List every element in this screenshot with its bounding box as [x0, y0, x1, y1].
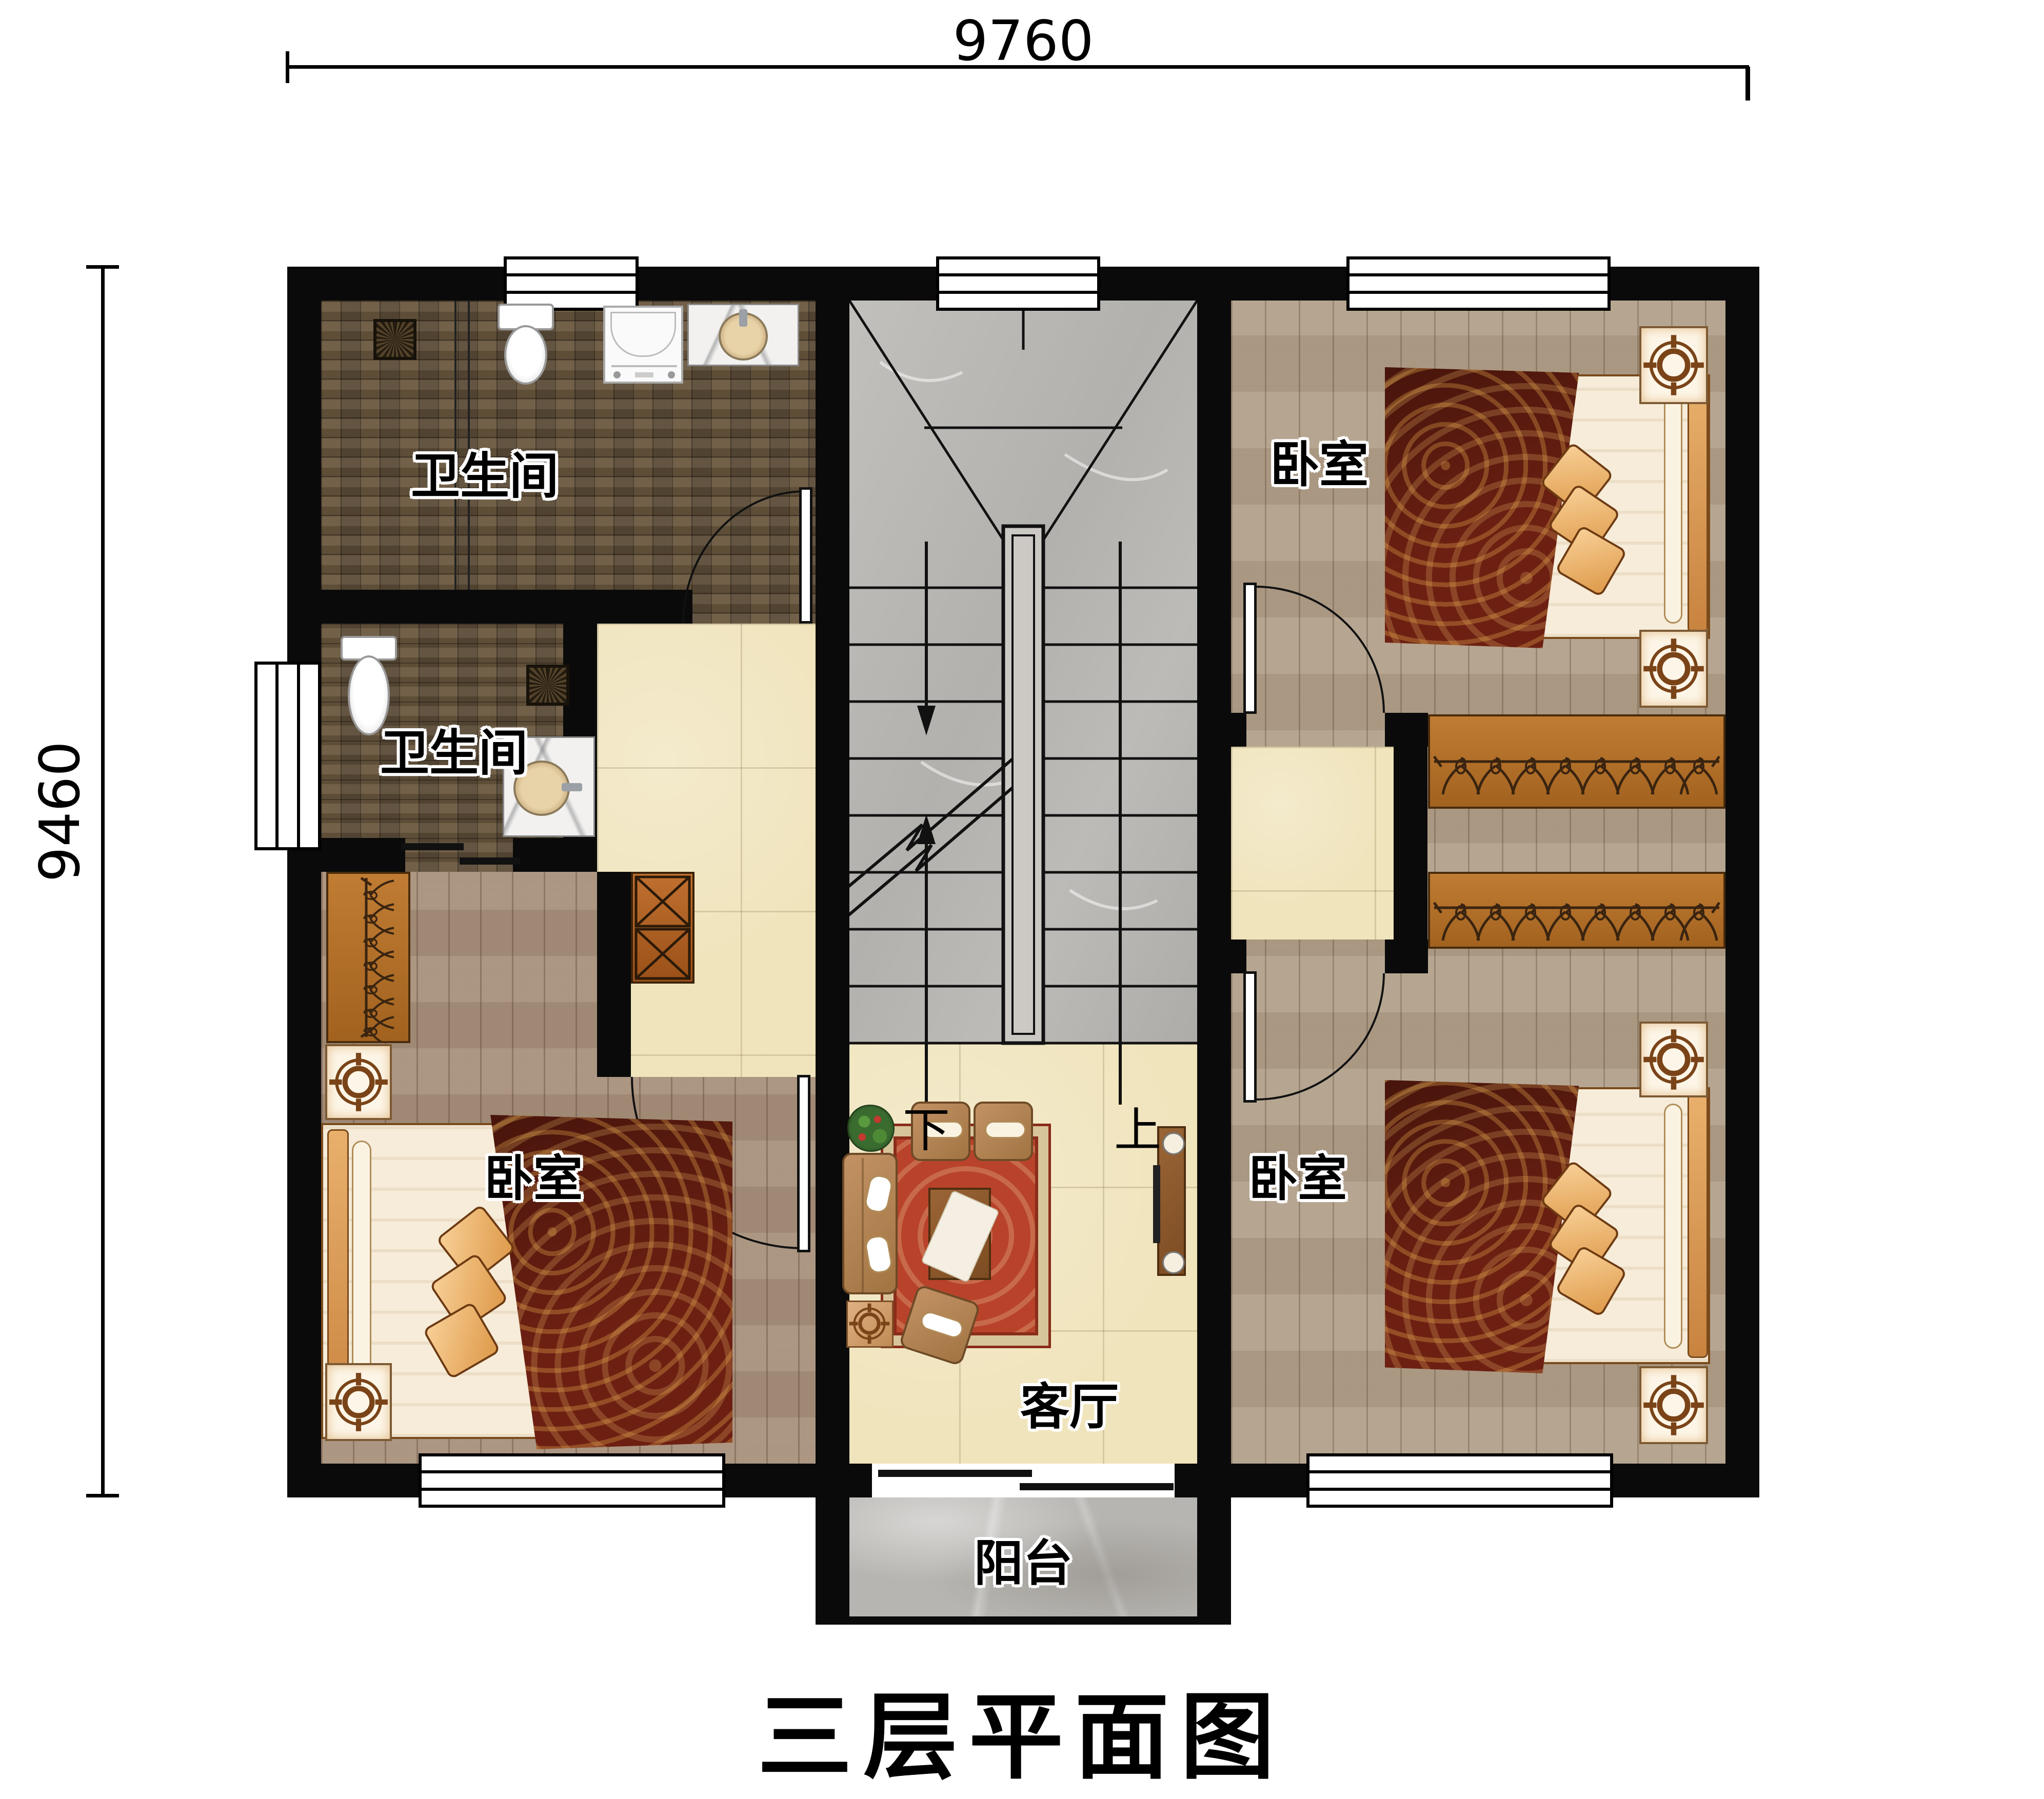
room-label-bedroom-bottom-left: 卧室 [484, 1139, 583, 1210]
balcony-rail [816, 1616, 1231, 1625]
dim-tick-left-top [86, 265, 119, 269]
wall-bedroom-br-top-b [1385, 940, 1428, 973]
nightstand-lamp-icon [1641, 333, 1706, 397]
door-leaf-bathroom-mid-a [401, 843, 464, 850]
wardrobe-icon-top-right [1428, 714, 1725, 809]
nightstand-bottom-right-b [1639, 1366, 1708, 1444]
dim-tick-left-bottom [86, 1494, 119, 1497]
window-icon-top-bathroom [504, 256, 639, 311]
room-label-bathroom-mid: 卫生间 [380, 713, 528, 785]
shoe-cabinet-icon [631, 872, 694, 984]
dim-tick-top-right [1745, 67, 1750, 101]
nightstand-bottom-left-a [325, 1044, 392, 1120]
floor-drain-icon-mid [526, 665, 569, 706]
wall-bedroom-br-top-a [1197, 940, 1246, 973]
sink-icon-top [687, 304, 799, 366]
room-label-bathroom-top: 卫生间 [411, 436, 559, 508]
door-leaf-bedroom-bl [797, 1075, 810, 1252]
side-table-icon [846, 1301, 894, 1348]
sofa-icon [842, 1153, 898, 1294]
wall-bathroom-top-bottom [287, 590, 692, 624]
window-icon-bottom-left-bedroom [419, 1453, 725, 1508]
toilet-icon-top [498, 304, 554, 386]
room-label-bedroom-bottom-right: 卧室 [1248, 1139, 1347, 1210]
balcony-door-opening [872, 1464, 1175, 1497]
armchair-icon-b [974, 1102, 1033, 1161]
tv-console-icon [1157, 1126, 1186, 1276]
coffee-table-icon [928, 1188, 991, 1280]
window-icon-left-bathroom [254, 662, 321, 850]
wardrobe-icon-left [326, 872, 410, 1043]
hall-floor-right-arm [1231, 747, 1394, 940]
page-title: 三层平面图 [758, 1661, 1286, 1797]
dim-text-left: 9460 [28, 741, 92, 882]
floor-drain-icon-top [373, 319, 416, 360]
window-icon-top-stairs [936, 256, 1100, 311]
bed-icon-top-right [1385, 374, 1710, 639]
stair-label-up: 上 [1114, 1092, 1161, 1161]
nightstand-bottom-right-a [1639, 1022, 1708, 1097]
wall-balcony-right [1197, 1497, 1231, 1624]
plant-icon [847, 1105, 895, 1152]
nightstand-bottom-left-b [325, 1363, 392, 1441]
dim-line-left [101, 267, 105, 1497]
wall-stair-left [816, 267, 849, 1077]
staircase [849, 301, 1197, 1138]
door-leaf-bedroom-br [1243, 971, 1257, 1103]
sliding-door-icon-a [878, 1470, 1032, 1477]
door-leaf-bathroom-top [799, 487, 812, 624]
nightstand-top-right-b [1639, 630, 1708, 708]
door-leaf-bedroom-tr [1243, 583, 1257, 714]
bed-icon-bottom-right [1385, 1087, 1710, 1364]
wall-dressing-divider [1394, 713, 1427, 973]
wall-balcony-left [816, 1497, 849, 1624]
floor-plan: 卫生间 卫生间 卧室 卧室 卧室 客厅 阳台 下 上 9760 9460 三层平… [0, 0, 2044, 1799]
room-label-living: 客厅 [1020, 1367, 1119, 1438]
dim-tick-top-left [286, 51, 289, 83]
wall-left [287, 267, 321, 1497]
wall-cabinet-back [597, 872, 631, 1077]
stair-label-down: 下 [903, 1092, 950, 1161]
sliding-door-icon-b [1020, 1483, 1174, 1490]
window-icon-bottom-right-bedroom [1306, 1453, 1613, 1508]
washing-machine-icon [603, 306, 683, 384]
window-icon-top-bedroom [1346, 256, 1611, 311]
room-label-balcony: 阳台 [974, 1524, 1073, 1595]
room-label-bedroom-top-right: 卧室 [1270, 425, 1368, 496]
dim-text-top: 9760 [953, 9, 1094, 73]
wall-bedroom-tr-bottom-a [1197, 713, 1246, 747]
wall-bathroom-mid-bottom-b [513, 838, 597, 872]
nightstand-top-right-a [1639, 326, 1708, 404]
wall-right [1725, 267, 1759, 1497]
wardrobe-icon-bottom-right [1428, 872, 1725, 949]
door-leaf-bathroom-mid-b [460, 857, 520, 865]
wall-bedroom-br-left [1197, 973, 1231, 1464]
